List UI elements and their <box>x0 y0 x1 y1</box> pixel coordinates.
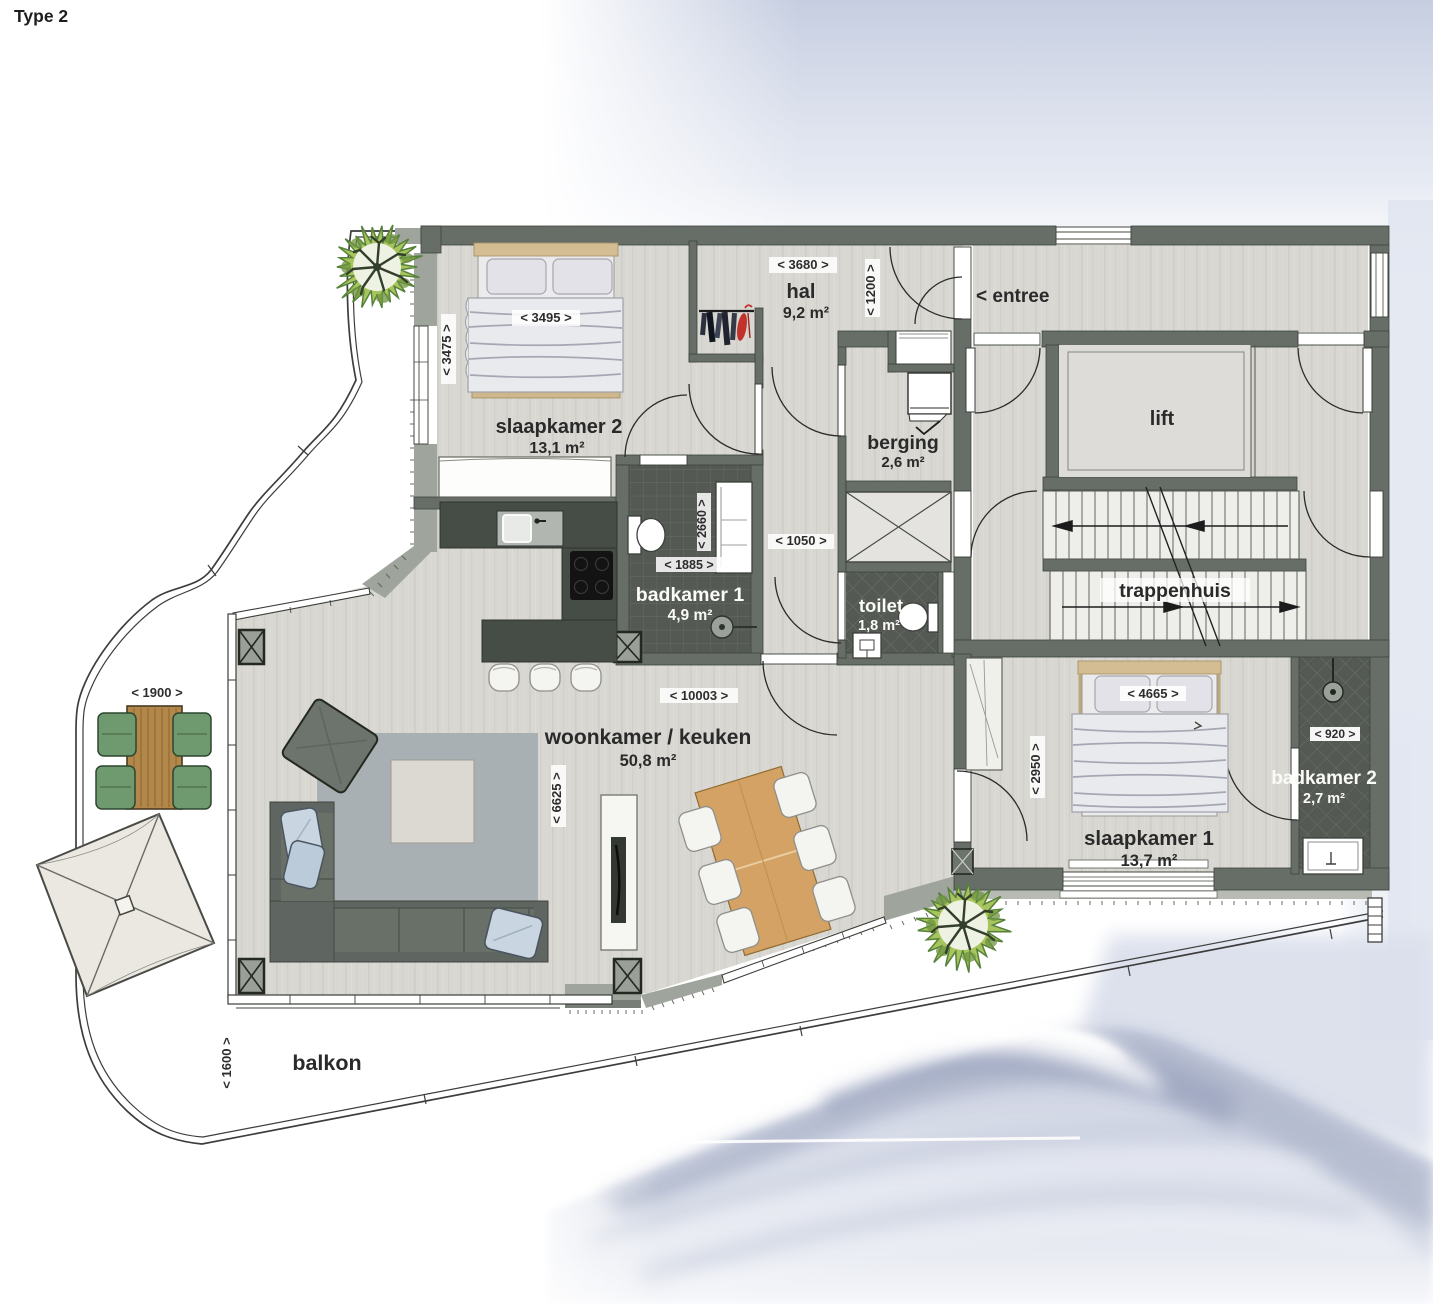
svg-text:9,2 m²: 9,2 m² <box>783 305 829 322</box>
svg-text:badkamer 1: badkamer 1 <box>636 584 745 606</box>
svg-text:balkon: balkon <box>292 1051 361 1075</box>
svg-text:lift: lift <box>1150 408 1175 430</box>
svg-text:< 10003 >: < 10003 > <box>670 688 729 703</box>
svg-text:< 2950 >: < 2950 > <box>1028 743 1043 795</box>
svg-text:< 1600 >: < 1600 > <box>219 1037 234 1089</box>
svg-text:< 4665 >: < 4665 > <box>1127 686 1179 701</box>
svg-text:hal: hal <box>787 281 816 303</box>
svg-text:slaapkamer 1: slaapkamer 1 <box>1084 827 1214 850</box>
svg-text:< 1885 >: < 1885 > <box>664 558 713 572</box>
svg-text:13,1 m²: 13,1 m² <box>529 440 584 457</box>
svg-text:< 2660 >: < 2660 > <box>695 499 709 548</box>
svg-text:1,8 m²: 1,8 m² <box>858 618 900 634</box>
svg-text:badkamer 2: badkamer 2 <box>1271 768 1377 789</box>
svg-text:4,9 m²: 4,9 m² <box>668 607 713 624</box>
svg-text:< 3475 >: < 3475 > <box>439 324 454 376</box>
svg-text:slaapkamer 2: slaapkamer 2 <box>496 416 623 438</box>
svg-text:berging: berging <box>867 432 939 454</box>
svg-text:< 1900 >: < 1900 > <box>131 685 183 700</box>
svg-text:50,8 m²: 50,8 m² <box>620 752 677 770</box>
svg-text:< entree: < entree <box>976 286 1049 307</box>
svg-text:toilet: toilet <box>859 595 903 616</box>
svg-text:< 1200 >: < 1200 > <box>863 264 878 316</box>
svg-text:2,7 m²: 2,7 m² <box>1303 791 1345 807</box>
svg-text:2,6 m²: 2,6 m² <box>881 454 924 471</box>
svg-text:Type 2: Type 2 <box>14 6 68 26</box>
svg-text:trappenhuis: trappenhuis <box>1119 580 1231 602</box>
svg-text:< 3680 >: < 3680 > <box>777 257 829 272</box>
svg-text:13,7 m²: 13,7 m² <box>1121 852 1178 870</box>
svg-text:< 6625 >: < 6625 > <box>549 772 564 824</box>
svg-text:< 3495 >: < 3495 > <box>520 310 572 325</box>
svg-text:< 1050 >: < 1050 > <box>775 533 827 548</box>
svg-text:woonkamer / keuken: woonkamer / keuken <box>544 726 752 749</box>
svg-text:< 920 >: < 920 > <box>1315 727 1356 741</box>
